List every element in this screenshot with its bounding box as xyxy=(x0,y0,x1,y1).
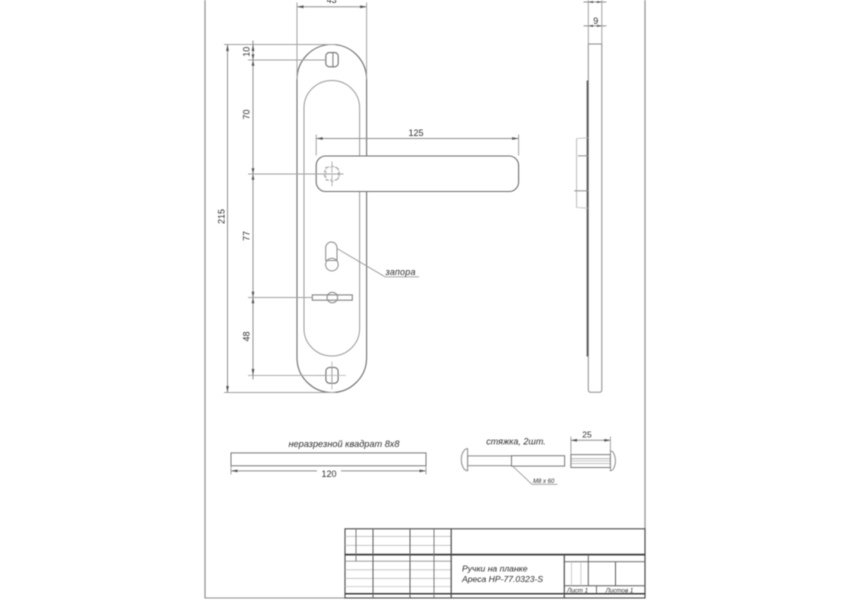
svg-text:43: 43 xyxy=(327,0,337,5)
svg-text:стяжка, 2шт.: стяжка, 2шт. xyxy=(486,437,546,447)
svg-text:неразрезной квадрат 8х8: неразрезной квадрат 8х8 xyxy=(288,439,400,449)
svg-text:Листов 1: Листов 1 xyxy=(605,587,634,594)
svg-text:25: 25 xyxy=(582,430,592,440)
svg-text:10: 10 xyxy=(242,47,252,57)
svg-text:9: 9 xyxy=(593,16,598,26)
svg-text:Ареса НР-77.0323-S: Ареса НР-77.0323-S xyxy=(461,574,543,584)
svg-text:запора: запора xyxy=(385,267,416,277)
svg-text:48: 48 xyxy=(242,331,252,341)
svg-text:Ручки на планке: Ручки на планке xyxy=(462,564,528,574)
svg-text:М8 х 60: М8 х 60 xyxy=(533,479,555,485)
svg-text:77: 77 xyxy=(242,231,252,241)
svg-text:120: 120 xyxy=(321,469,336,479)
svg-text:215: 215 xyxy=(217,209,227,224)
svg-text:Лист 1: Лист 1 xyxy=(566,587,588,594)
svg-text:70: 70 xyxy=(242,109,252,119)
svg-text:125: 125 xyxy=(408,128,423,138)
